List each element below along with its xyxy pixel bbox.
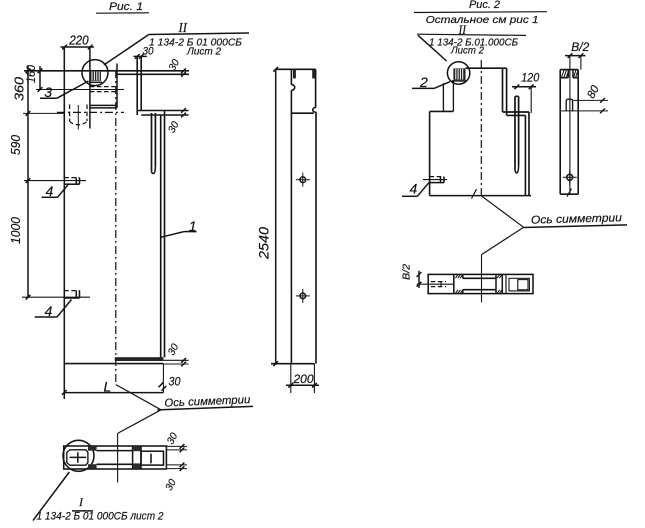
svg-text:В/2: В/2 [401,264,413,280]
svg-text:590: 590 [8,134,23,155]
svg-text:II: II [178,20,189,35]
svg-text:1000: 1000 [8,216,23,244]
svg-text:Ось симметрии: Ось симметрии [531,212,623,226]
svg-text:Рис. 2: Рис. 2 [469,0,500,11]
svg-text:4: 4 [410,180,418,196]
svg-text:Рис. 1: Рис. 1 [109,1,143,13]
svg-text:30: 30 [143,45,154,57]
svg-text:360: 360 [12,76,27,101]
svg-text:Лист 2: Лист 2 [450,46,485,57]
svg-text:30: 30 [169,376,182,388]
svg-text:Лист 2: Лист 2 [186,47,222,58]
svg-text:220: 220 [68,34,88,48]
svg-text:Остальное см рис 1: Остальное см рис 1 [426,14,539,26]
svg-text:200: 200 [293,372,314,386]
svg-text:L: L [104,378,112,394]
svg-text:1 134-2 Б 01 000СБ лист 2: 1 134-2 Б 01 000СБ лист 2 [37,511,164,523]
svg-text:120: 120 [521,73,540,85]
svg-text:В/2: В/2 [571,42,590,54]
svg-text:3: 3 [44,84,52,100]
svg-text:2540: 2540 [257,226,272,260]
